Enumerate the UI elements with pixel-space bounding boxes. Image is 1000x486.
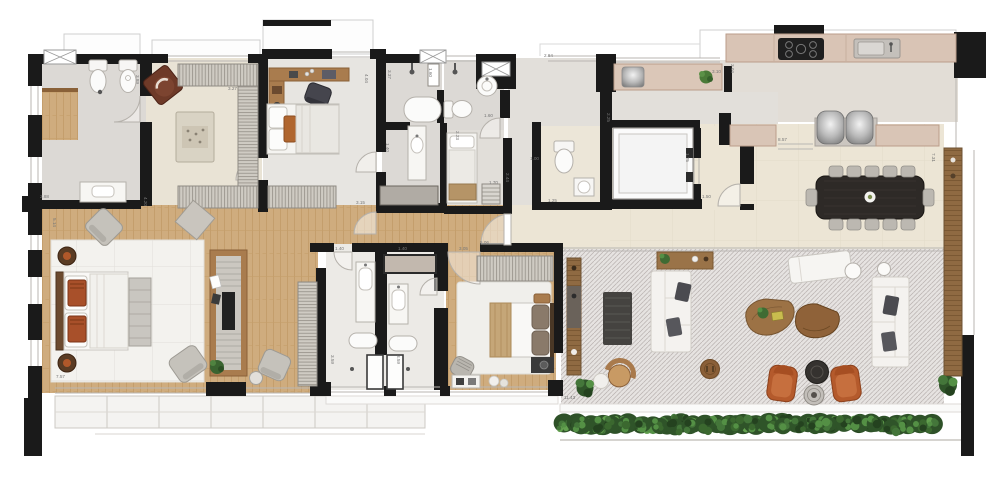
svg-text:11.43: 11.43: [564, 395, 576, 400]
svg-text:4.20: 4.20: [143, 197, 148, 206]
svg-text:1.70: 1.70: [489, 180, 498, 185]
svg-text:4.04: 4.04: [364, 74, 369, 83]
svg-text:2.88: 2.88: [40, 194, 49, 199]
svg-text:3.59: 3.59: [396, 355, 401, 364]
svg-text:1.75: 1.75: [685, 153, 690, 162]
svg-text:3.10: 3.10: [712, 69, 721, 74]
svg-text:1.40: 1.40: [385, 143, 390, 152]
svg-text:1.60: 1.60: [484, 113, 493, 118]
svg-text:1.40: 1.40: [335, 246, 344, 251]
svg-text:3.04: 3.04: [730, 64, 735, 73]
svg-text:1.00: 1.00: [530, 156, 539, 161]
svg-text:3.89: 3.89: [135, 75, 140, 84]
svg-text:7.57: 7.57: [56, 374, 65, 379]
svg-text:1.25: 1.25: [548, 198, 557, 203]
svg-text:7.31: 7.31: [931, 153, 936, 162]
svg-text:1.60: 1.60: [428, 68, 433, 77]
svg-text:1.40: 1.40: [398, 246, 407, 251]
svg-text:5.14: 5.14: [52, 218, 57, 227]
svg-text:3.15: 3.15: [356, 200, 365, 205]
svg-text:2.25: 2.25: [606, 113, 611, 122]
svg-text:3.59: 3.59: [330, 355, 335, 364]
svg-text:8.57: 8.57: [778, 137, 787, 142]
svg-text:2.44: 2.44: [505, 173, 510, 182]
svg-text:2.23: 2.23: [455, 131, 460, 140]
svg-text:3.05: 3.05: [459, 246, 468, 251]
svg-text:1.50: 1.50: [702, 194, 711, 199]
svg-text:2.84: 2.84: [544, 53, 553, 58]
svg-text:5.06: 5.06: [480, 240, 489, 245]
svg-text:3.27: 3.27: [228, 86, 237, 91]
svg-text:3.37: 3.37: [387, 70, 392, 79]
